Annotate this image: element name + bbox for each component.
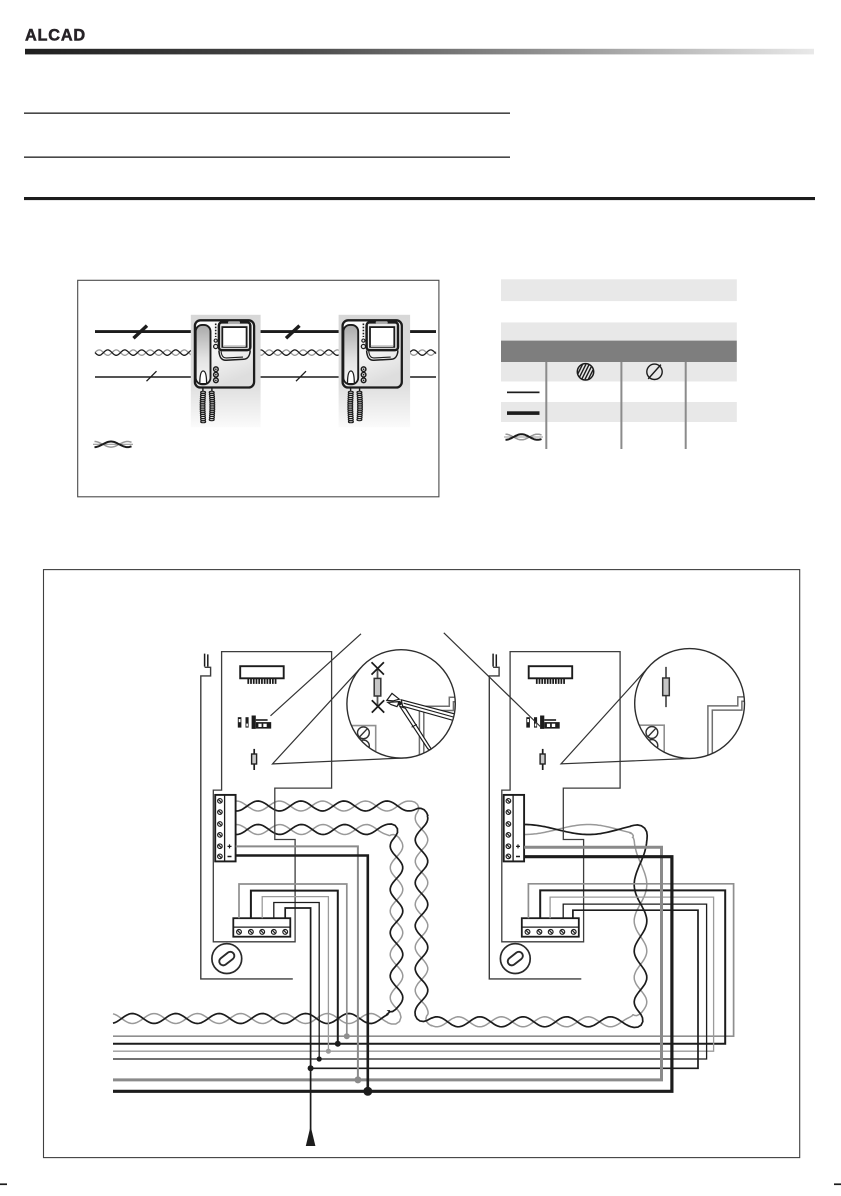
- svg-text:ALCAD: ALCAD: [25, 27, 86, 45]
